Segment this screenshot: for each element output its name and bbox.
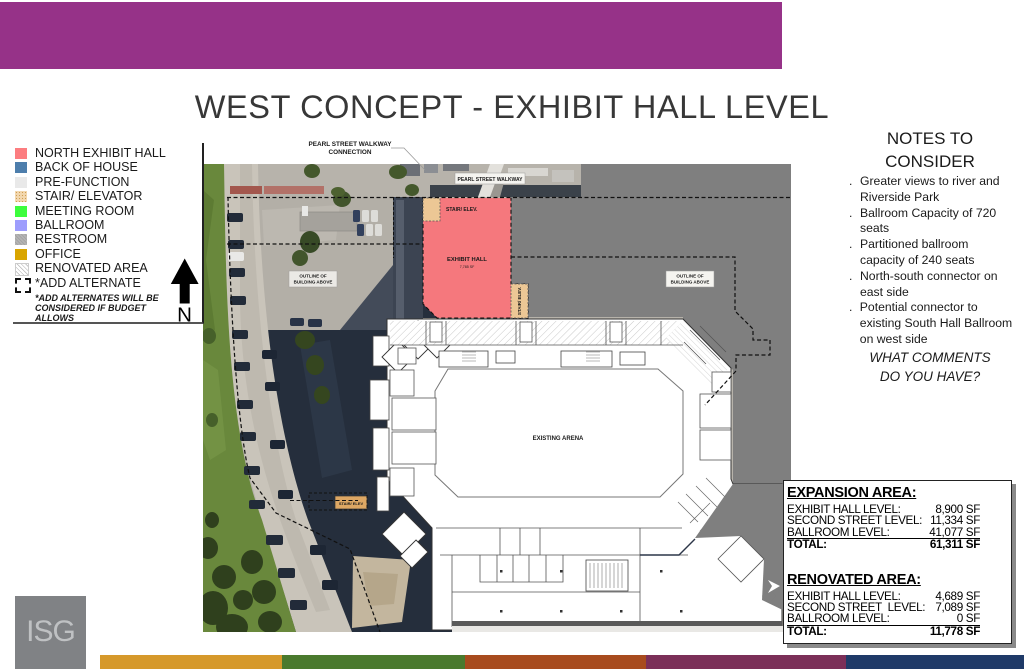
svg-text:EXHIBIT HALL: EXHIBIT HALL bbox=[447, 257, 487, 263]
svg-text:BUILDING ABOVE: BUILDING ABOVE bbox=[294, 280, 333, 285]
svg-text:7,785 SF: 7,785 SF bbox=[460, 265, 475, 269]
svg-text:PEARL STREET WALKWAY: PEARL STREET WALKWAY bbox=[457, 177, 523, 183]
svg-text:STAIR/ ELEV.: STAIR/ ELEV. bbox=[517, 287, 522, 315]
svg-text:OUTLINE OF: OUTLINE OF bbox=[676, 274, 703, 279]
svg-text:STAIR/ ELEV: STAIR/ ELEV bbox=[339, 501, 364, 506]
svg-text:STAIR/ ELEV.: STAIR/ ELEV. bbox=[446, 207, 478, 213]
svg-text:N: N bbox=[177, 304, 192, 326]
svg-text:EXISTING ARENA: EXISTING ARENA bbox=[533, 436, 584, 442]
svg-text:OUTLINE OF: OUTLINE OF bbox=[299, 274, 326, 279]
svg-text:BUILDING ABOVE: BUILDING ABOVE bbox=[671, 280, 710, 285]
